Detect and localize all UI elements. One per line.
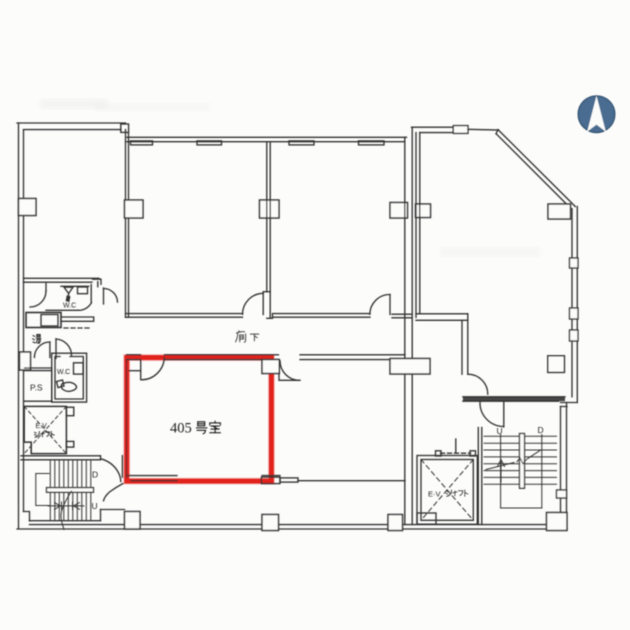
svg-text:U: U bbox=[92, 501, 98, 511]
svg-text:W.C: W.C bbox=[57, 369, 70, 376]
svg-text:E·V: E·V bbox=[428, 490, 441, 499]
svg-text:405: 405 bbox=[170, 421, 192, 437]
svg-text:D: D bbox=[538, 425, 544, 435]
svg-text:U: U bbox=[497, 426, 503, 436]
svg-text:P.S: P.S bbox=[30, 383, 43, 393]
svg-text:W.C: W.C bbox=[63, 303, 76, 310]
svg-text:D: D bbox=[92, 470, 98, 480]
svg-text:E.V: E.V bbox=[36, 423, 48, 430]
